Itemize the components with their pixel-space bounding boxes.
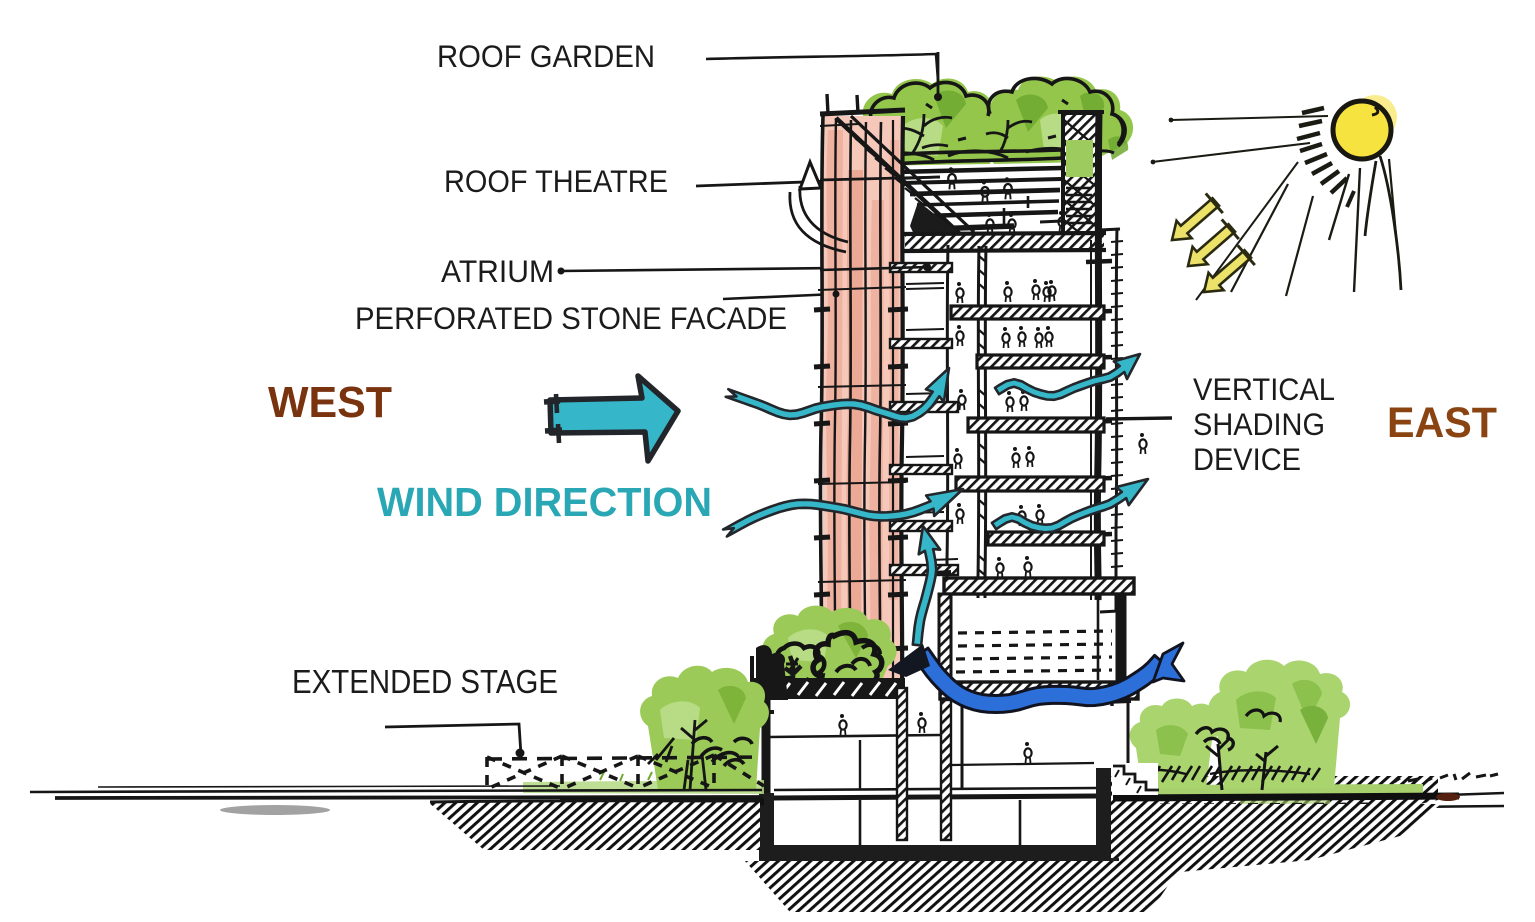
svg-text:ROOF THEATRE: ROOF THEATRE (444, 163, 668, 199)
svg-text:VERTICAL: VERTICAL (1193, 371, 1335, 407)
svg-text:DEVICE: DEVICE (1193, 441, 1301, 477)
svg-text:EXTENDED STAGE: EXTENDED STAGE (292, 663, 558, 700)
svg-text:PERFORATED STONE FACADE: PERFORATED STONE FACADE (355, 300, 787, 336)
svg-text:WEST: WEST (268, 378, 392, 427)
svg-text:ROOF GARDEN: ROOF GARDEN (437, 38, 655, 74)
svg-text:ATRIUM: ATRIUM (441, 253, 554, 289)
svg-text:WIND DIRECTION: WIND DIRECTION (377, 479, 712, 525)
svg-text:SHADING: SHADING (1193, 406, 1325, 442)
svg-text:EAST: EAST (1387, 399, 1497, 447)
